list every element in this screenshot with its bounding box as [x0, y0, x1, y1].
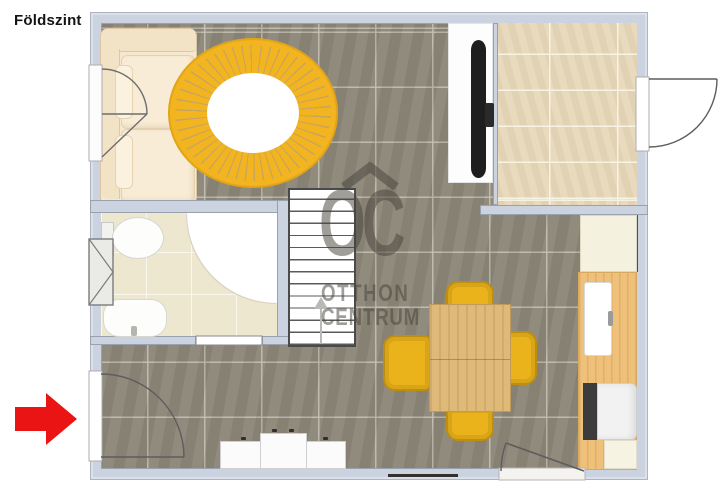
dining-chair-west [383, 335, 431, 391]
rug-center [207, 73, 299, 153]
stairs-up-arrow-head [314, 297, 328, 309]
sideboard-section [220, 441, 261, 469]
tall-kitchen-cabinet [580, 215, 637, 272]
sideboard-handle [289, 429, 294, 432]
sofa-pillow [115, 65, 133, 119]
dining-chair-south [446, 407, 494, 441]
sideboard-section [260, 433, 307, 469]
bathroom-bottom-wall-right [262, 336, 290, 345]
floor-level-label: Földszint [14, 12, 82, 29]
bathroom-top-wall [90, 200, 290, 213]
sideboard-handle [241, 437, 246, 440]
entrance-arrow-icon [15, 393, 77, 445]
sideboard-section [306, 441, 346, 469]
tiled-room-bottom-wall [480, 205, 648, 215]
wall-mounted-tv [471, 40, 486, 178]
floorplan-page: Földszint [0, 0, 728, 500]
toilet [112, 217, 164, 259]
kitchen-faucet [608, 311, 613, 326]
stairs-up-arrow [320, 308, 322, 344]
sideboard-handle [272, 429, 277, 432]
staircase [288, 188, 356, 347]
round-sunburst-rug [168, 38, 338, 188]
bathroom-sink-faucet [131, 326, 137, 336]
dining-table [429, 304, 511, 412]
bottom-wall-marker [388, 474, 458, 477]
washing-machine [597, 383, 637, 440]
tv-mount [485, 103, 494, 127]
entry-tiled-room-floor [498, 23, 637, 205]
kitchen-base-cabinet [604, 440, 637, 469]
bathroom-bottom-wall-left [90, 336, 196, 345]
sofa-pillow [115, 135, 133, 189]
table-seam [430, 359, 510, 360]
appliance-side-panel [583, 383, 597, 440]
terrace-door [636, 77, 717, 151]
sideboard-handle [323, 437, 328, 440]
